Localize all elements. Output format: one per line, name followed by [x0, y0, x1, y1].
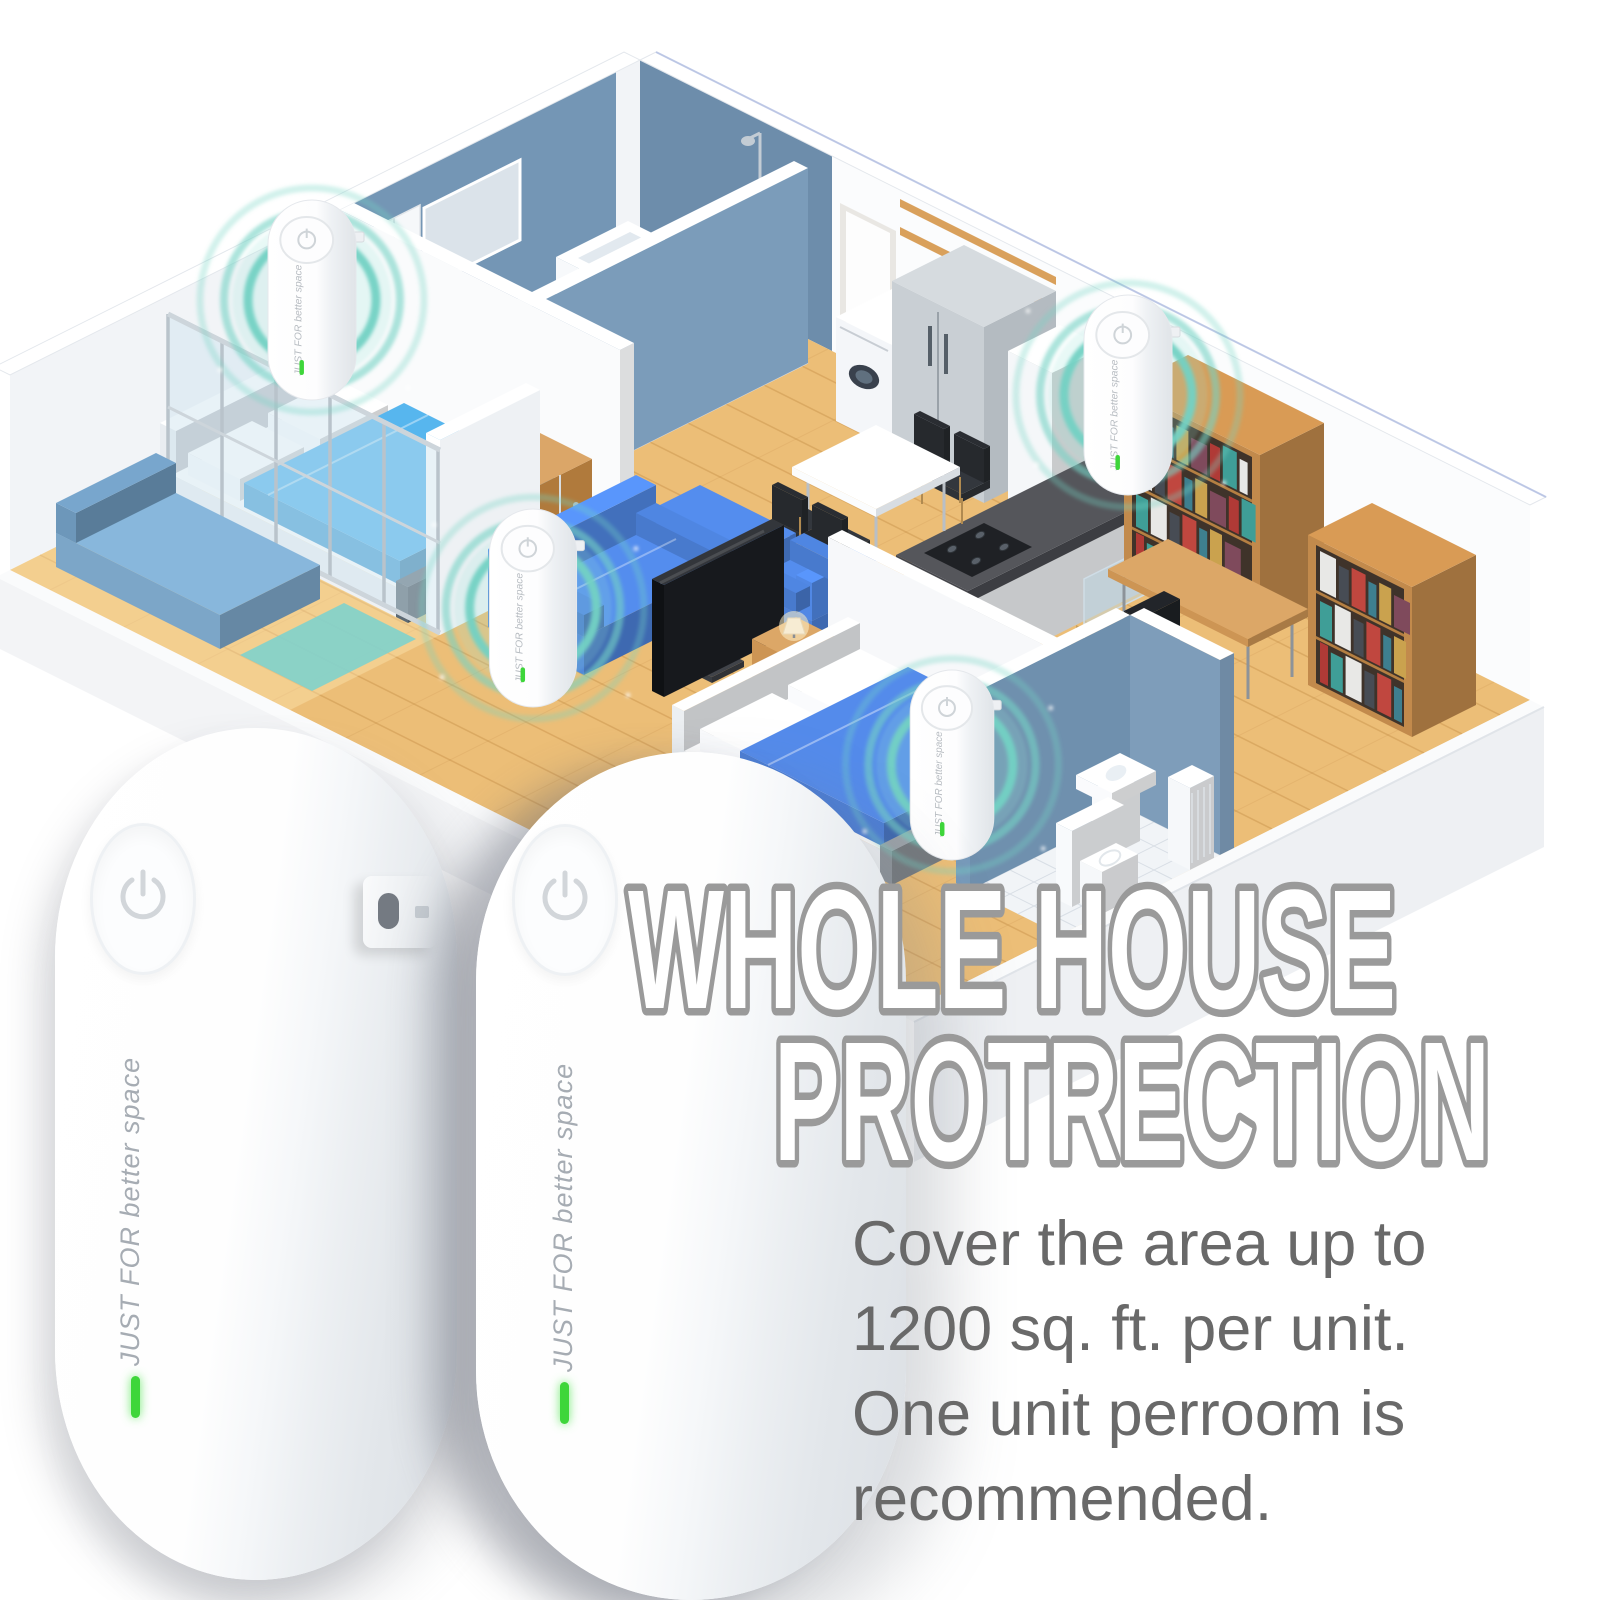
body-line: recommended. — [852, 1457, 1426, 1542]
body-line: One unit perroom is — [852, 1372, 1426, 1457]
body-line: Cover the area up to — [852, 1202, 1426, 1287]
body-line: 1200 sq. ft. per unit. — [852, 1287, 1426, 1372]
ad-canvas: JUST FOR better spaceJUST FOR better spa… — [0, 0, 1600, 1600]
headline-line-2: PROTRECTION — [774, 1007, 1490, 1197]
body-copy: Cover the area up to 1200 sq. ft. per un… — [852, 1202, 1426, 1542]
